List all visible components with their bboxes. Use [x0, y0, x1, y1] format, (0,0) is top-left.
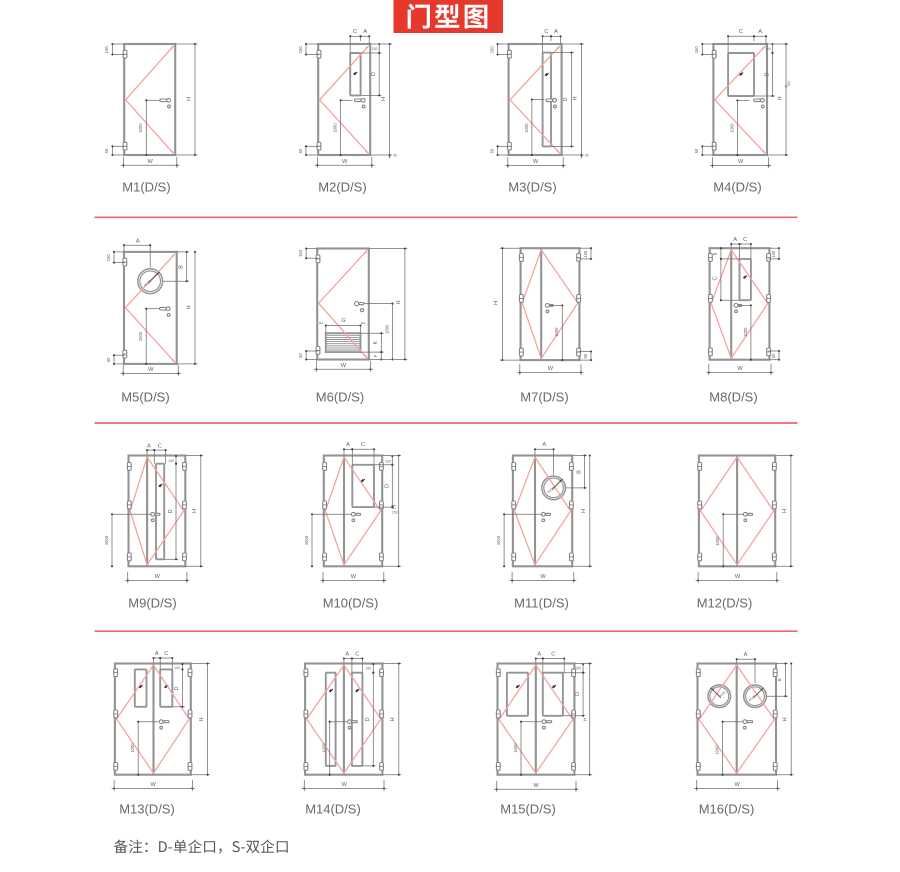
svg-text:H: H	[199, 717, 205, 721]
svg-text:1000: 1000	[322, 743, 327, 753]
svg-text:1000: 1000	[384, 324, 389, 334]
svg-text:H: H	[186, 305, 192, 309]
svg-text:50: 50	[298, 353, 303, 358]
svg-text:150: 150	[575, 667, 581, 671]
svg-text:M4(D/S): M4(D/S)	[713, 180, 761, 195]
svg-text:150: 150	[298, 46, 303, 54]
svg-text:G: G	[341, 318, 345, 324]
svg-text:W: W	[737, 366, 743, 372]
svg-text:H: H	[494, 301, 500, 305]
svg-text:1000: 1000	[715, 745, 720, 755]
svg-text:1000: 1000	[138, 331, 143, 341]
svg-text:1000: 1000	[304, 535, 309, 545]
svg-text:W: W	[148, 367, 154, 373]
svg-text:150: 150	[174, 666, 180, 670]
svg-text:50: 50	[771, 353, 776, 358]
svg-text:H: H	[573, 96, 579, 100]
svg-text:M10(D/S): M10(D/S)	[323, 596, 379, 611]
svg-text:150: 150	[372, 47, 378, 51]
svg-text:D: D	[575, 692, 581, 696]
svg-text:50: 50	[489, 148, 494, 153]
svg-text:W: W	[533, 783, 539, 789]
svg-text:150: 150	[168, 459, 174, 463]
svg-text:50: 50	[106, 357, 111, 362]
svg-text:H: H	[186, 97, 192, 101]
svg-text:W: W	[155, 574, 161, 580]
svg-text:150: 150	[787, 81, 791, 87]
svg-text:C: C	[743, 237, 747, 243]
svg-text:50: 50	[694, 148, 699, 153]
svg-text:A: A	[554, 29, 558, 35]
svg-text:1000: 1000	[513, 743, 518, 753]
svg-text:D: D	[563, 97, 569, 101]
svg-text:M15(D/S): M15(D/S)	[500, 802, 556, 817]
svg-text:H: H	[582, 718, 587, 721]
svg-text:1000: 1000	[333, 123, 338, 133]
svg-text:M5(D/S): M5(D/S)	[121, 390, 169, 405]
svg-text:W: W	[738, 159, 744, 165]
svg-text:K: K	[373, 340, 379, 344]
svg-text:50: 50	[585, 153, 589, 157]
svg-text:150: 150	[765, 47, 771, 51]
svg-text:A: A	[744, 652, 748, 658]
svg-text:1000: 1000	[743, 327, 748, 337]
svg-text:C: C	[551, 651, 555, 657]
svg-text:F: F	[373, 354, 378, 357]
svg-text:E: E	[360, 321, 365, 324]
svg-text:150: 150	[104, 46, 109, 54]
svg-text:M16(D/S): M16(D/S)	[699, 802, 755, 817]
svg-text:M1(D/S): M1(D/S)	[122, 180, 170, 195]
svg-text:C: C	[158, 443, 162, 449]
svg-text:1000: 1000	[104, 535, 109, 545]
svg-text:1000: 1000	[554, 327, 559, 337]
svg-text:E: E	[319, 321, 324, 324]
svg-text:H: H	[783, 717, 789, 721]
svg-text:H: H	[192, 509, 198, 513]
svg-text:D: D	[371, 72, 377, 76]
svg-text:1000: 1000	[130, 743, 135, 753]
svg-text:A: A	[147, 443, 151, 449]
svg-text:C: C	[544, 29, 548, 35]
svg-text:C: C	[739, 29, 743, 35]
svg-text:M8(D/S): M8(D/S)	[709, 390, 757, 405]
svg-text:B: B	[178, 265, 184, 269]
svg-text:50: 50	[104, 148, 109, 153]
svg-text:A: A	[136, 238, 140, 244]
svg-text:W: W	[341, 782, 347, 788]
svg-text:C: C	[164, 651, 168, 657]
svg-text:150: 150	[365, 667, 371, 671]
svg-text:150: 150	[106, 254, 111, 262]
svg-text:M14(D/S): M14(D/S)	[305, 802, 361, 817]
svg-text:A: A	[346, 442, 350, 448]
svg-text:50: 50	[298, 148, 303, 153]
svg-text:D: D	[764, 72, 770, 76]
svg-text:H: H	[396, 300, 402, 304]
svg-text:C: C	[361, 442, 365, 448]
svg-text:H: H	[392, 505, 398, 509]
svg-text:D: D	[174, 686, 180, 690]
svg-text:C: C	[355, 651, 359, 657]
svg-text:M3(D/S): M3(D/S)	[508, 180, 556, 195]
svg-text:B: B	[576, 470, 582, 474]
svg-text:A: A	[155, 651, 159, 657]
svg-text:H: H	[581, 509, 587, 513]
svg-text:D: D	[168, 509, 174, 513]
svg-text:50: 50	[583, 353, 588, 358]
svg-text:H: H	[777, 96, 783, 100]
svg-text:M2(D/S): M2(D/S)	[318, 180, 366, 195]
svg-text:C: C	[713, 276, 719, 280]
svg-text:M7(D/S): M7(D/S)	[520, 390, 568, 405]
svg-text:W: W	[735, 782, 741, 788]
svg-text:B: B	[713, 252, 718, 255]
svg-text:A: A	[537, 651, 541, 657]
svg-text:1000: 1000	[496, 535, 501, 545]
svg-text:150: 150	[771, 250, 776, 258]
svg-text:W: W	[342, 159, 348, 165]
svg-text:150: 150	[583, 250, 588, 258]
svg-text:150: 150	[392, 511, 398, 515]
svg-text:D: D	[365, 717, 371, 721]
svg-text:M12(D/S): M12(D/S)	[697, 596, 753, 611]
svg-text:H: H	[381, 97, 387, 101]
svg-text:W: W	[151, 782, 157, 788]
svg-text:50: 50	[393, 153, 397, 157]
svg-text:150: 150	[298, 249, 303, 257]
svg-text:H: H	[390, 717, 396, 721]
svg-text:1000: 1000	[715, 536, 720, 546]
svg-text:B: B	[777, 678, 782, 681]
svg-text:W: W	[351, 574, 357, 580]
svg-text:1000: 1000	[729, 123, 734, 133]
svg-text:A: A	[758, 29, 762, 35]
svg-text:W: W	[147, 159, 153, 165]
svg-text:C: C	[353, 29, 357, 35]
svg-text:W: W	[548, 366, 554, 372]
svg-text:M6(D/S): M6(D/S)	[316, 390, 364, 405]
svg-text:150: 150	[489, 46, 494, 54]
svg-text:M11(D/S): M11(D/S)	[514, 596, 569, 611]
svg-text:1000: 1000	[524, 123, 529, 133]
svg-text:A: A	[363, 29, 367, 35]
svg-text:H: H	[782, 509, 788, 513]
svg-text:1000: 1000	[138, 123, 143, 133]
svg-text:W: W	[341, 363, 347, 369]
svg-text:M9(D/S): M9(D/S)	[128, 596, 176, 611]
svg-text:M13(D/S): M13(D/S)	[119, 802, 175, 817]
svg-text:150: 150	[385, 459, 391, 463]
svg-text:A: A	[542, 442, 546, 448]
svg-text:A: A	[345, 651, 349, 657]
svg-text:W: W	[735, 574, 741, 580]
svg-text:D: D	[385, 484, 391, 488]
svg-text:W: W	[540, 574, 546, 580]
svg-text:W: W	[533, 159, 539, 165]
svg-text:A: A	[733, 237, 737, 243]
svg-text:150: 150	[694, 46, 699, 54]
